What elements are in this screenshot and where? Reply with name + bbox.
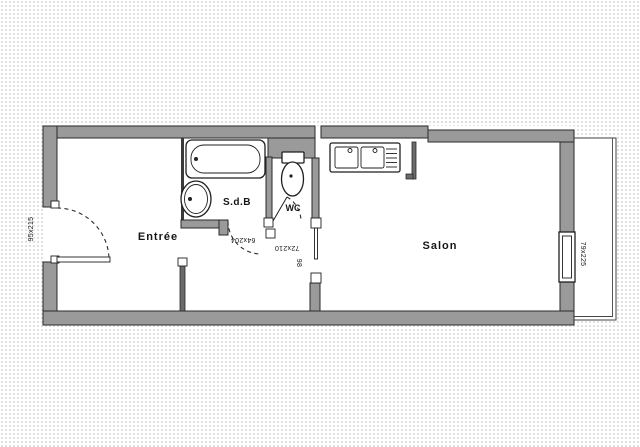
toilet-bowl [282, 162, 304, 196]
wall-right-upper [560, 142, 574, 233]
wall-top-left [43, 126, 315, 138]
dim-entrance-door: 95x215 [28, 217, 35, 242]
room-label-sdb: S.d.B [223, 197, 251, 208]
toilet-tank [282, 152, 304, 163]
wall-hall-stub [180, 265, 185, 311]
hall-stub-jamb [178, 258, 187, 266]
dim-sdb-door: 64x204 [231, 236, 256, 243]
washbasin-drain-dot [188, 197, 192, 201]
room-label-entree: Entrée [138, 231, 178, 243]
salon-door-jamb-top [311, 218, 321, 228]
entrance-door-jamb-top [51, 201, 59, 208]
dim-salon-window: 79x225 [579, 242, 586, 267]
faucet-dot-left [348, 149, 352, 153]
wall-right-lower [560, 282, 574, 311]
washbasin [181, 181, 211, 217]
wall-top-right [428, 130, 574, 142]
bathtub-drain-dot [194, 157, 198, 161]
room-label-salon: Salon [423, 240, 458, 252]
kitchen-partition-stub [412, 142, 416, 179]
wall-top-mid [321, 126, 428, 138]
wall-salon-upper [312, 158, 319, 218]
salon-door-leaf [315, 228, 318, 259]
balcony-interior [574, 138, 617, 320]
wall-salon-lower [310, 283, 320, 311]
wall-left-upper [43, 126, 57, 207]
entrance-door-leaf [57, 257, 110, 262]
wc-door-jamb-left [264, 218, 273, 227]
salon-window [559, 232, 575, 282]
faucet-dot-right [373, 149, 377, 153]
salon-door-jamb-bottom [311, 273, 321, 283]
kitchen-partition-foot [406, 174, 413, 179]
wc-door-jamb-lower [266, 229, 275, 238]
wall-bottom [43, 311, 574, 325]
wall-sdb-bottom-step [219, 220, 228, 235]
dim-hall-salon-door: 98 [295, 259, 302, 267]
toilet-dot [289, 174, 292, 177]
room-label-wc: WC [286, 203, 301, 213]
wall-sdb-bottom [181, 220, 219, 228]
wall-wc-left [266, 157, 272, 218]
floorplan-drawing: Entrée S.d.B WC Salon 95x215 64x204 72x2… [0, 0, 640, 447]
floorplan-page: Entrée S.d.B WC Salon 95x215 64x204 72x2… [0, 0, 640, 447]
dim-wc-door: 72x210 [275, 244, 300, 251]
